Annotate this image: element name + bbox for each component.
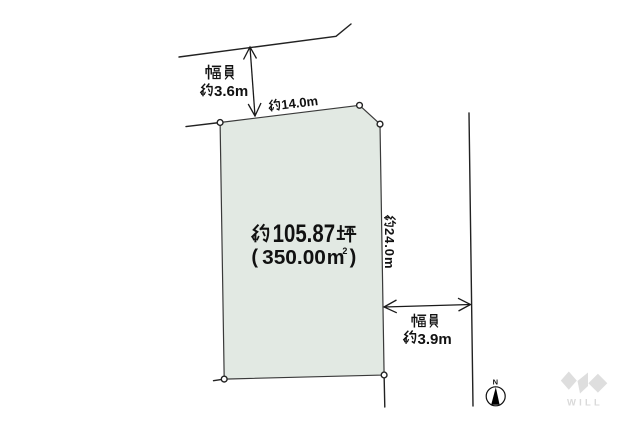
svg-text:105.87: 105.87 [273,220,336,248]
svg-text:): ) [350,247,357,269]
svg-text:350.00: 350.00 [262,247,326,269]
svg-text:3.9m: 3.9m [418,331,452,348]
svg-text:3.6m: 3.6m [214,83,248,100]
svg-text:N: N [493,378,498,387]
svg-text:WILL: WILL [567,398,603,409]
svg-text:24.0m: 24.0m [382,228,397,269]
svg-text:14.0m: 14.0m [280,93,318,112]
svg-text:2: 2 [342,246,347,256]
svg-text:(: ( [251,247,258,269]
